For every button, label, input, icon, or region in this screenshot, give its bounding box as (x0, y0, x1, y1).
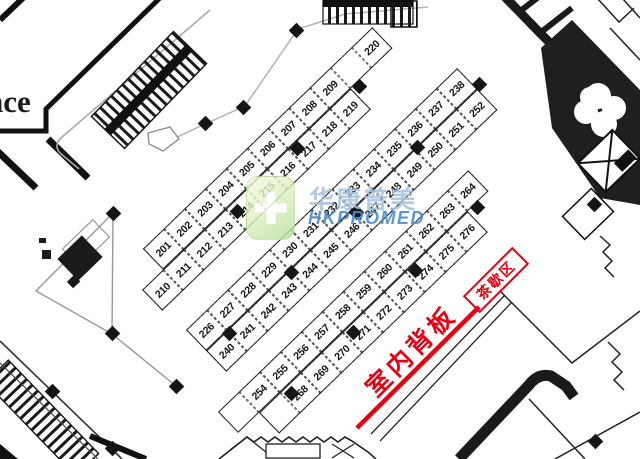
floor-plan: 2012022032042052062072082092202102112122… (0, 0, 640, 459)
watermark-latin-text: HKPROMED (308, 208, 425, 229)
hatch-box-topright (391, 1, 417, 27)
stage-block (51, 235, 104, 288)
entrance-label: nce (0, 84, 31, 120)
left-structure (36, 213, 176, 386)
stairs-bottomleft (0, 341, 146, 459)
floorplan-structure (0, 0, 640, 459)
corridor-lines (57, 7, 428, 169)
watermark-cross-logo-icon (246, 176, 295, 240)
right-structure (505, 0, 640, 277)
bottom-center-building (219, 437, 376, 459)
